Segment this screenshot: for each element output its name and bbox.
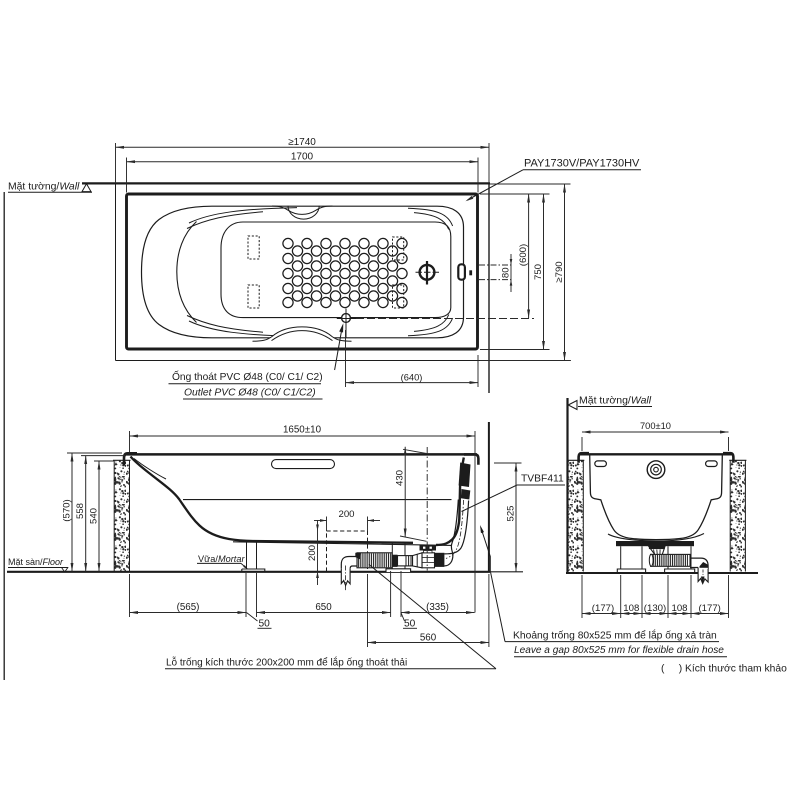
svg-text:(177): (177) bbox=[698, 603, 720, 614]
svg-text:Ống thoát PVC Ø48 (C0/ C1/ C2): Ống thoát PVC Ø48 (C0/ C1/ C2) bbox=[172, 369, 323, 383]
svg-text:700±10: 700±10 bbox=[640, 421, 671, 431]
svg-text:80: 80 bbox=[501, 267, 512, 278]
svg-text:108: 108 bbox=[671, 603, 687, 614]
svg-text:540: 540 bbox=[89, 508, 100, 524]
svg-text:(177): (177) bbox=[592, 603, 614, 614]
svg-text:(570): (570) bbox=[62, 499, 73, 521]
svg-text:Mặt tường/Wall: Mặt tường/Wall bbox=[579, 395, 652, 407]
svg-text:650: 650 bbox=[315, 602, 332, 613]
svg-text:(335): (335) bbox=[426, 602, 449, 613]
svg-text:750: 750 bbox=[533, 264, 544, 280]
svg-text:Leave a gap 80x525 mm for flex: Leave a gap 80x525 mm for flexible drain… bbox=[514, 645, 724, 656]
svg-text:(130): (130) bbox=[644, 603, 666, 614]
svg-text:Mặt sàn/Floor: Mặt sàn/Floor bbox=[8, 557, 64, 567]
svg-text:Mặt tường/Wall: Mặt tường/Wall bbox=[8, 182, 80, 193]
svg-text:≥790: ≥790 bbox=[554, 261, 565, 282]
svg-text:(640): (640) bbox=[401, 372, 423, 382]
svg-text:200: 200 bbox=[338, 509, 354, 520]
svg-text:(565): (565) bbox=[177, 602, 200, 613]
svg-text:Lỗ trống kích thước 200x200 mm: Lỗ trống kích thước 200x200 mm để lắp ốn… bbox=[166, 656, 407, 669]
svg-text:≥1740: ≥1740 bbox=[288, 137, 316, 148]
svg-text:525: 525 bbox=[506, 505, 517, 521]
svg-text:Vữa/Mortar: Vữa/Mortar bbox=[198, 554, 245, 564]
svg-text:(600): (600) bbox=[518, 244, 529, 266]
svg-text:1650±10: 1650±10 bbox=[283, 425, 322, 436]
svg-text:560: 560 bbox=[420, 632, 437, 643]
svg-text:( ) Kích thước tham khảo: ( ) Kích thước tham khảo bbox=[661, 664, 787, 675]
svg-text:200: 200 bbox=[307, 545, 318, 561]
svg-text:PAY1730V/PAY1730HV: PAY1730V/PAY1730HV bbox=[524, 158, 640, 170]
svg-text:Khoảng trống 80x525 mm để lắp: Khoảng trống 80x525 mm để lắp ống xả trà… bbox=[513, 628, 717, 641]
svg-text:1700: 1700 bbox=[291, 152, 314, 163]
svg-text:108: 108 bbox=[623, 603, 639, 614]
svg-text:Outlet PVC Ø48 (C0/ C1/C2): Outlet PVC Ø48 (C0/ C1/C2) bbox=[184, 388, 316, 399]
svg-text:50: 50 bbox=[259, 618, 271, 629]
svg-text:TVBF411: TVBF411 bbox=[521, 474, 564, 485]
svg-text:50: 50 bbox=[404, 618, 416, 629]
svg-text:558: 558 bbox=[75, 503, 86, 519]
svg-text:430: 430 bbox=[395, 470, 406, 486]
